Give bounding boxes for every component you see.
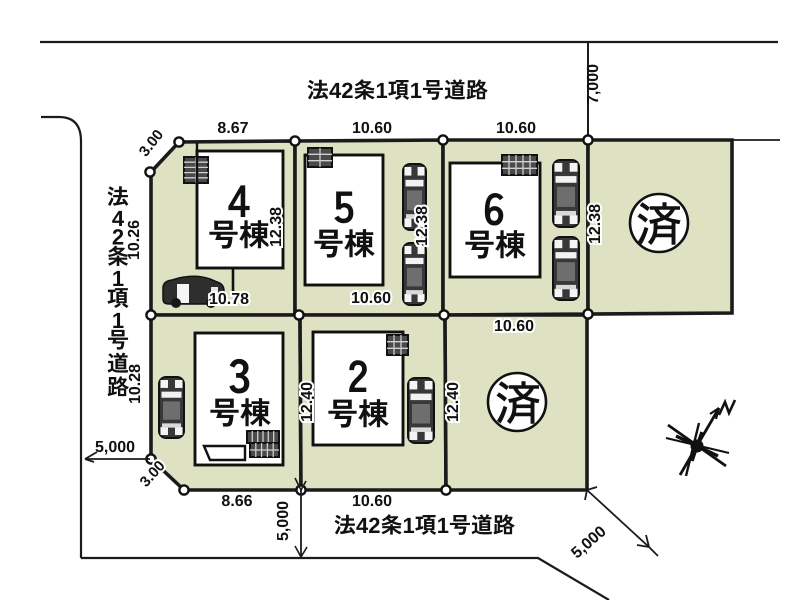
svg-text:10.60: 10.60 — [352, 120, 392, 137]
svg-text:12.38: 12.38 — [414, 206, 431, 246]
svg-text:2: 2 — [341, 78, 353, 103]
svg-text:10.60: 10.60 — [496, 120, 536, 137]
svg-text:1: 1 — [403, 513, 415, 538]
svg-text:7,000: 7,000 — [585, 64, 602, 104]
svg-text:1: 1 — [437, 513, 449, 538]
svg-text:10.60: 10.60 — [351, 290, 391, 307]
svg-text:12.38: 12.38 — [587, 204, 604, 244]
svg-text:2: 2 — [112, 224, 124, 249]
svg-text:5,000: 5,000 — [275, 501, 292, 541]
svg-text:10.60: 10.60 — [352, 493, 392, 510]
svg-text:12.40: 12.40 — [299, 382, 316, 422]
svg-text:4: 4 — [329, 78, 342, 103]
svg-text:12.38: 12.38 — [268, 207, 285, 247]
svg-text:10.26: 10.26 — [126, 220, 143, 260]
svg-text:10.28: 10.28 — [127, 364, 144, 404]
svg-text:8.67: 8.67 — [217, 120, 248, 137]
svg-text:12.40: 12.40 — [445, 382, 462, 422]
svg-text:8.66: 8.66 — [221, 493, 252, 510]
svg-text:1: 1 — [112, 266, 124, 291]
svg-text:10.60: 10.60 — [494, 318, 534, 335]
svg-text:2: 2 — [368, 513, 380, 538]
svg-text:4: 4 — [356, 513, 369, 538]
svg-text:10.78: 10.78 — [209, 291, 249, 308]
svg-text:5,000: 5,000 — [95, 439, 135, 456]
svg-text:1: 1 — [410, 78, 422, 103]
svg-text:1: 1 — [376, 78, 388, 103]
svg-text:1: 1 — [112, 308, 124, 333]
